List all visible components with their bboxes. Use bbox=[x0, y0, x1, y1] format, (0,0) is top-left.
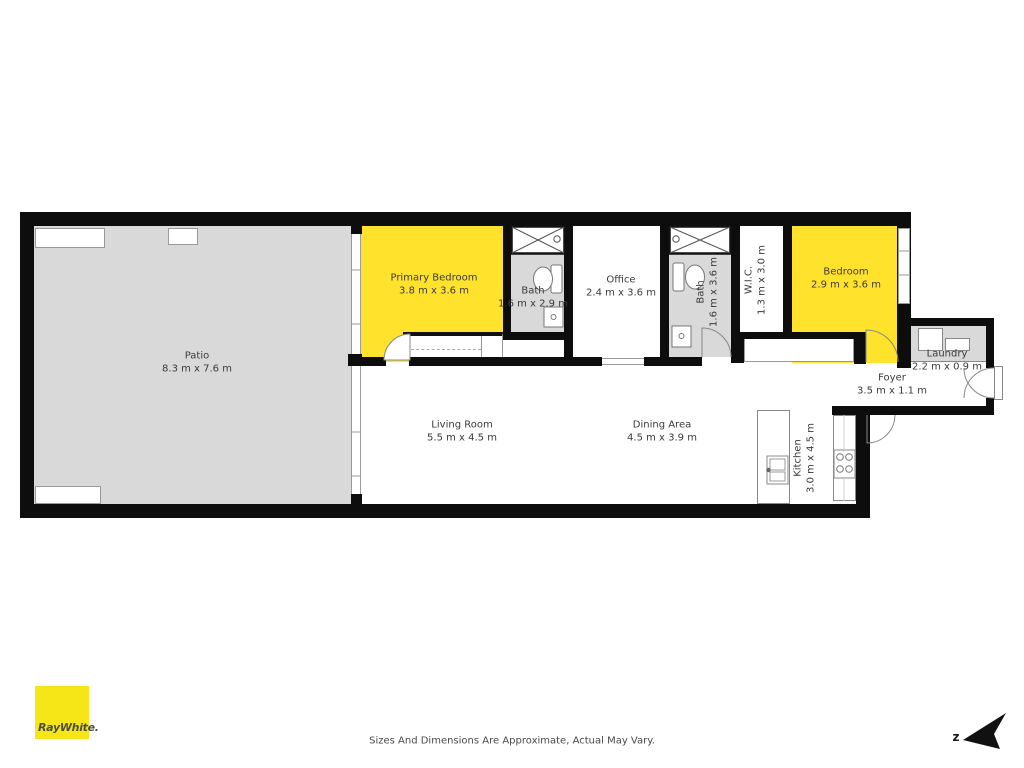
room-name: Bedroom bbox=[811, 267, 881, 280]
entry-door-panel bbox=[994, 366, 1003, 400]
room-label-kitchen: Kitchen 3.0 m x 4.5 m bbox=[793, 423, 818, 493]
room-name: Dining Area bbox=[627, 420, 697, 433]
wall bbox=[731, 332, 866, 339]
wall bbox=[409, 357, 602, 366]
wall bbox=[832, 406, 994, 415]
room-dims: 1.3 m x 3.0 m bbox=[756, 245, 769, 315]
primary-wardrobe bbox=[403, 332, 503, 360]
wall bbox=[986, 318, 994, 368]
room-dims: 2.9 m x 3.6 m bbox=[811, 279, 881, 292]
wall bbox=[20, 504, 870, 518]
room-name: Primary Bedroom bbox=[390, 273, 477, 286]
room-label-dining-area: Dining Area 4.5 m x 3.9 m bbox=[627, 420, 697, 445]
office-doorway bbox=[602, 358, 644, 365]
room-label-foyer: Foyer 3.5 m x 1.1 m bbox=[857, 373, 927, 398]
room-dims: 2.4 m x 3.6 m bbox=[586, 287, 656, 300]
wall bbox=[854, 332, 866, 364]
room-label-bath-2: Bath 1.6 m x 3.6 m bbox=[696, 257, 721, 327]
room-label-living-room: Living Room 5.5 m x 4.5 m bbox=[427, 420, 497, 445]
wall bbox=[897, 318, 994, 326]
room-name: Bath bbox=[498, 286, 568, 299]
shower-icon bbox=[512, 227, 565, 254]
room-label-patio: Patio 8.3 m x 7.6 m bbox=[162, 351, 232, 376]
wall bbox=[503, 332, 568, 340]
room-dims: 1.6 m x 3.6 m bbox=[708, 257, 721, 327]
wardrobe-divider bbox=[481, 336, 482, 359]
wall bbox=[348, 357, 386, 366]
wardrobe-rail bbox=[411, 349, 481, 350]
disclaimer-text: Sizes And Dimensions Are Approximate, Ac… bbox=[369, 736, 655, 747]
room-dims: 3.5 m x 1.1 m bbox=[857, 385, 927, 398]
wall bbox=[856, 406, 870, 518]
kitchen-island bbox=[757, 410, 790, 504]
room-label-laundry: Laundry 2.2 m x 0.9 m bbox=[912, 349, 982, 374]
floor-plan: Patio 8.3 m x 7.6 m Primary Bedroom 3.8 … bbox=[0, 0, 1024, 768]
north-label: z bbox=[953, 730, 960, 744]
room-label-office: Office 2.4 m x 3.6 m bbox=[586, 275, 656, 300]
room-label-bath-1: Bath 1.6 m x 2.9 m bbox=[498, 286, 568, 311]
room-dims: 3.8 m x 3.6 m bbox=[390, 285, 477, 298]
wall bbox=[20, 212, 911, 226]
wall bbox=[783, 226, 792, 339]
room-name: Bath bbox=[696, 257, 709, 327]
room-name: Office bbox=[586, 275, 656, 288]
raywhite-logo-text: RayWhite. bbox=[38, 721, 99, 734]
wall bbox=[731, 226, 740, 340]
wall bbox=[351, 494, 362, 518]
room-label-bedroom: Bedroom 2.9 m x 3.6 m bbox=[811, 267, 881, 292]
wall bbox=[731, 332, 744, 363]
room-name: W.I.C. bbox=[744, 245, 757, 315]
room-label-wic: W.I.C. 1.3 m x 3.0 m bbox=[744, 245, 769, 315]
room-dims: 3.0 m x 4.5 m bbox=[805, 423, 818, 493]
wall bbox=[644, 357, 702, 366]
patio-planter bbox=[35, 228, 105, 248]
wall bbox=[660, 226, 669, 366]
room-dims: 1.6 m x 2.9 m bbox=[498, 298, 568, 311]
room-dims: 5.5 m x 4.5 m bbox=[427, 432, 497, 445]
window-bedroom bbox=[898, 228, 910, 304]
kitchen-counter bbox=[833, 415, 856, 501]
room-name: Foyer bbox=[857, 373, 927, 386]
room-label-primary-bedroom: Primary Bedroom 3.8 m x 3.6 m bbox=[390, 273, 477, 298]
wall bbox=[351, 212, 362, 234]
shower-icon bbox=[670, 227, 731, 254]
north-arrow-icon bbox=[963, 713, 1006, 749]
wall bbox=[20, 212, 34, 518]
wall bbox=[503, 226, 511, 340]
patio-planter bbox=[168, 228, 198, 245]
room-name: Living Room bbox=[427, 420, 497, 433]
room-name: Patio bbox=[162, 351, 232, 364]
room-name: Laundry bbox=[912, 349, 982, 362]
room-dims: 4.5 m x 3.9 m bbox=[627, 432, 697, 445]
raywhite-logo: RayWhite. bbox=[35, 686, 89, 739]
hall-closet bbox=[744, 339, 854, 362]
room-dims: 8.3 m x 7.6 m bbox=[162, 363, 232, 376]
room-name: Kitchen bbox=[793, 423, 806, 493]
patio-planter bbox=[35, 486, 101, 504]
